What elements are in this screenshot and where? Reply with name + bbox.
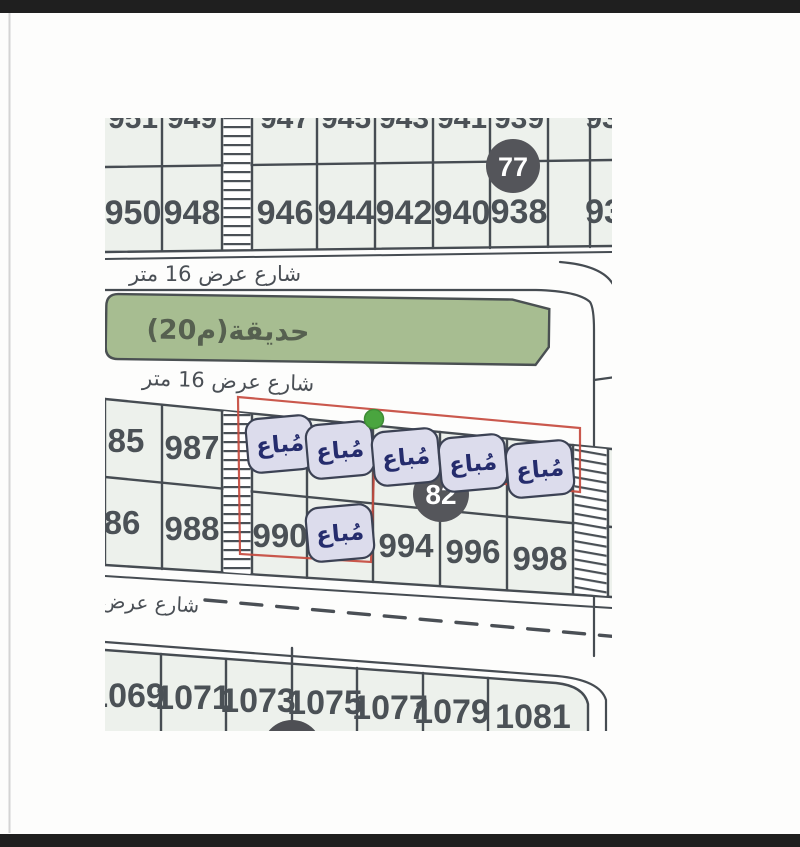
sold-badge-label: مُباع bbox=[315, 519, 365, 549]
plot-1081: 1081 bbox=[495, 698, 571, 736]
sold-badge[interactable]: مُباع bbox=[305, 503, 375, 563]
sold-badge[interactable]: مُباع bbox=[245, 414, 315, 474]
plot-942: 942 bbox=[376, 194, 433, 232]
plot-994: 994 bbox=[378, 527, 434, 564]
bottom-bar bbox=[0, 834, 800, 847]
sold-badge[interactable]: مُباع bbox=[505, 439, 575, 499]
sold-badge[interactable]: مُباع bbox=[438, 433, 508, 493]
marker-77[interactable]: 77 bbox=[486, 139, 540, 193]
sold-badge[interactable]: مُباع bbox=[305, 420, 375, 480]
plot-1073: 1073 bbox=[220, 682, 296, 720]
plot-951: 951 bbox=[108, 102, 158, 135]
street-top-label: شارع عرض 16 متر bbox=[128, 262, 301, 286]
plot-988: 988 bbox=[164, 510, 219, 547]
plot-985-partial: 85 bbox=[108, 422, 145, 459]
plot-990: 990 bbox=[252, 517, 307, 554]
plot-948: 948 bbox=[164, 194, 221, 232]
plot-938: 938 bbox=[491, 193, 548, 231]
plot-944: 944 bbox=[318, 194, 375, 232]
plot-950: 950 bbox=[105, 194, 162, 232]
sold-badge-label: مُباع bbox=[315, 436, 365, 466]
sold-badge-label: مُباع bbox=[515, 455, 565, 485]
map-area: 951 949 947 945 943 941 939 93 950 948 9… bbox=[89, 102, 665, 780]
plot-945: 945 bbox=[321, 102, 371, 135]
garden: حديقة(م20) bbox=[106, 294, 550, 365]
plot-940: 940 bbox=[434, 194, 491, 232]
plot-map-canvas: 951 949 947 945 943 941 939 93 950 948 9… bbox=[0, 0, 800, 847]
plot-943: 943 bbox=[379, 102, 429, 135]
plot-1079: 1079 bbox=[414, 693, 490, 731]
plot-949: 949 bbox=[167, 102, 217, 135]
marker-77-label: 77 bbox=[498, 152, 528, 182]
plot-946: 946 bbox=[257, 194, 314, 232]
sold-badge[interactable]: مُباع bbox=[371, 427, 441, 487]
plot-947: 947 bbox=[260, 102, 310, 135]
plot-987: 987 bbox=[164, 429, 219, 466]
plot-936-partial: 93 bbox=[585, 193, 623, 231]
street-bottom-label: شارع عرض bbox=[101, 588, 200, 617]
plot-map-screenshot: 951 949 947 945 943 941 939 93 950 948 9… bbox=[0, 0, 800, 847]
sold-badge-label: مُباع bbox=[381, 443, 431, 473]
plot-937-partial: 93 bbox=[585, 102, 618, 135]
marker-clipped-bottom[interactable] bbox=[262, 720, 322, 780]
sold-badge-label: مُباع bbox=[448, 449, 498, 479]
green-dot-marker[interactable] bbox=[365, 410, 384, 429]
stairs-strip-top bbox=[224, 110, 251, 249]
plot-998: 998 bbox=[512, 540, 567, 577]
plot-986-partial: 86 bbox=[104, 504, 141, 541]
plot-939: 939 bbox=[494, 102, 544, 135]
garden-label: حديقة(م20) bbox=[146, 314, 309, 347]
street-middle-label: شارع عرض 16 متر bbox=[141, 366, 315, 396]
top-bar bbox=[0, 0, 800, 13]
plot-1069-partial: 1069 bbox=[89, 677, 165, 715]
plot-996: 996 bbox=[445, 533, 500, 570]
street-edge-line bbox=[105, 252, 612, 259]
plot-941: 941 bbox=[437, 102, 487, 135]
sold-badge-label: مُباع bbox=[255, 430, 305, 460]
